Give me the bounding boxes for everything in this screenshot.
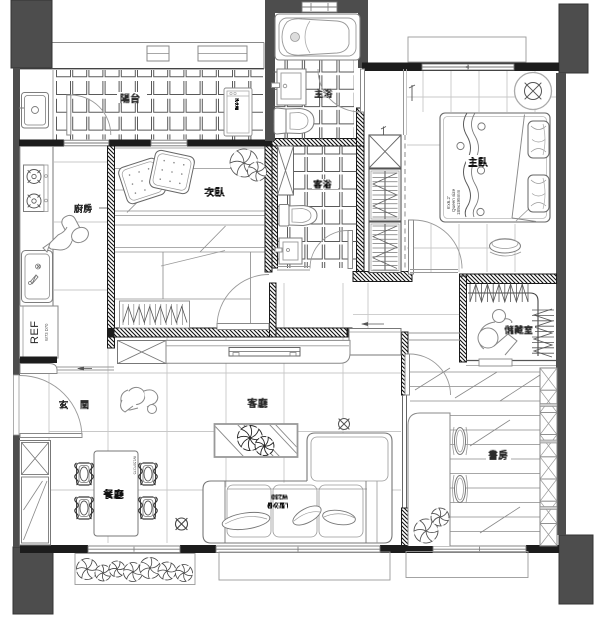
svg-text:W73 D70: W73 D70: [44, 323, 49, 341]
svg-text:REF: REF: [29, 321, 41, 345]
svg-text:W150*D75: W150*D75: [133, 456, 137, 474]
svg-text:189x195mm: 189x195mm: [456, 190, 461, 215]
